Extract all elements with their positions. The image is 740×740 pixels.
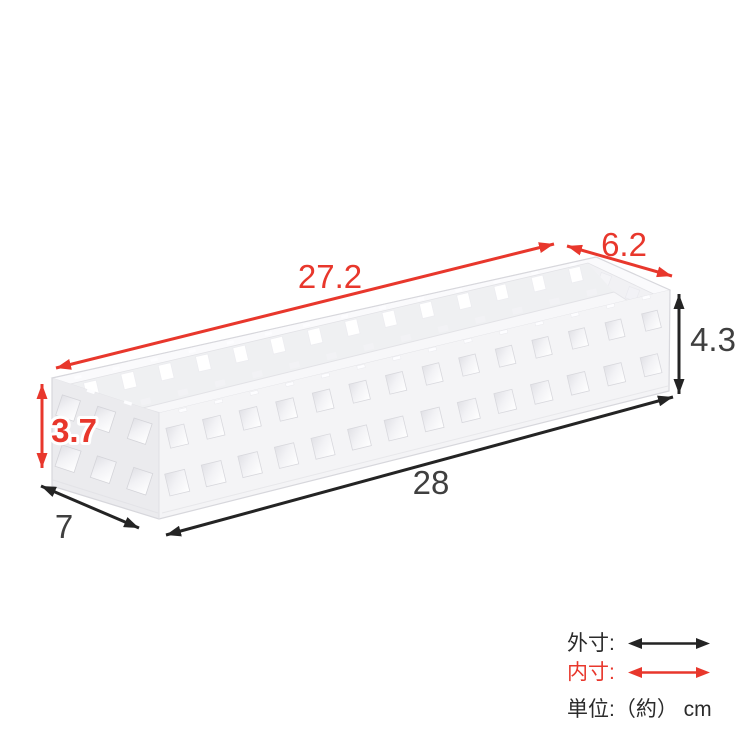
inner-length-value: 27.2	[298, 258, 362, 295]
outer-length-value: 28	[413, 464, 450, 501]
inner-height-value: 3.7	[51, 412, 97, 449]
outer-height-value: 4.3	[690, 321, 736, 358]
legend-inner-label: 内寸:	[567, 658, 627, 687]
tray-illustration	[52, 257, 670, 519]
dimension-legend: 外寸: 内寸: 単位:（約） cm	[567, 629, 712, 723]
product-dimension-diagram: 27.2 6.2 4.3 3.7 7 28	[0, 0, 740, 740]
legend-unit-label: 単位:（約） cm	[567, 693, 712, 723]
legend-outer-row: 外寸:	[567, 629, 712, 658]
inner-dimension-arrow-icon	[627, 666, 711, 679]
legend-outer-label: 外寸:	[567, 629, 627, 658]
legend-inner-row: 内寸:	[567, 658, 712, 687]
outer-depth-value: 7	[55, 508, 73, 545]
outer-dimension-arrow-icon	[627, 637, 711, 650]
dim-outer-height: 4.3	[679, 294, 736, 394]
inner-width-value: 6.2	[601, 226, 647, 263]
